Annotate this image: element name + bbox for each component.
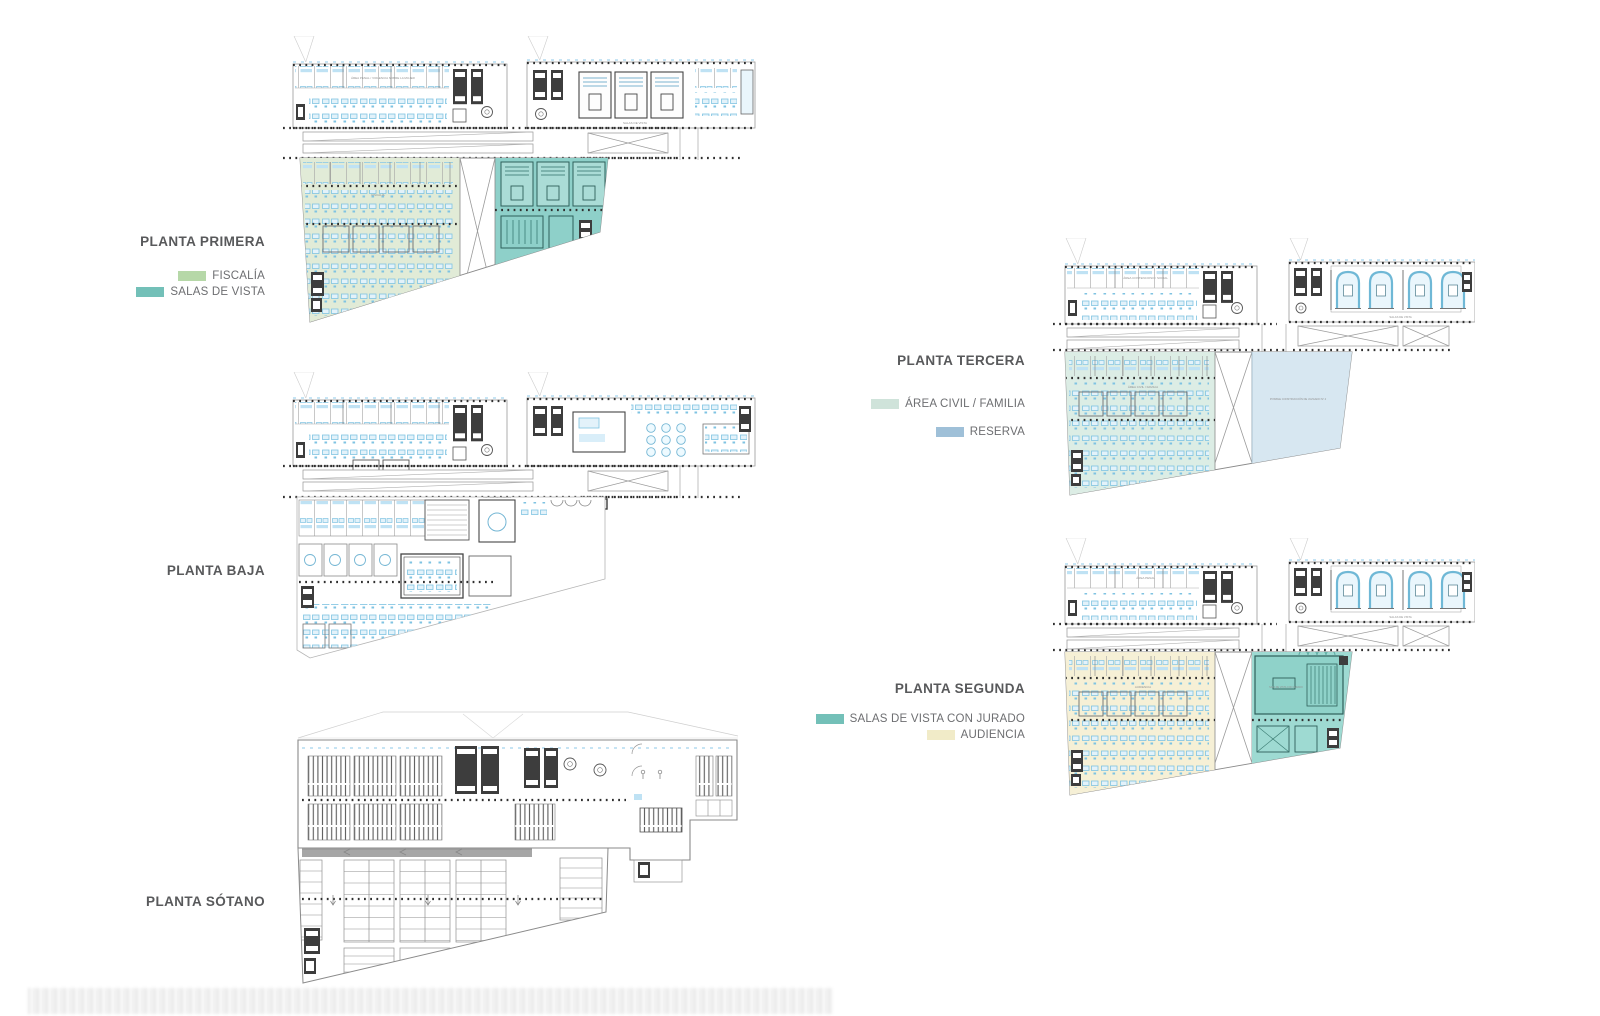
- plan-title-segunda: PLANTA SEGUNDA: [895, 681, 1025, 696]
- svg-text:SALA DE VISTA CON JURADO: SALA DE VISTA CON JURADO: [1269, 686, 1303, 689]
- plan-title-baja: PLANTA BAJA: [167, 563, 265, 578]
- legend-label: FISCALÍA: [212, 270, 265, 282]
- drawing-sheet: { "page": { "background": "#ffffff" }, "…: [0, 0, 1600, 1016]
- plan-title-sotano: PLANTA SÓTANO: [146, 894, 265, 909]
- svg-text:SALAS DE VISTA: SALAS DE VISTA: [1389, 315, 1411, 319]
- floor-plan-baja: CONTROL DE ACCESOS: [283, 372, 763, 664]
- legend-label: ÁREA CIVIL / FAMILIA: [905, 398, 1025, 410]
- floor-plan-sotano: [288, 700, 843, 1000]
- legend-swatch-salas-jurado: [816, 714, 844, 724]
- legend-item: ÁREA CIVIL / FAMILIA: [871, 398, 1025, 410]
- legend-item: RESERVA: [936, 426, 1025, 438]
- svg-text:SALAS DE VISTA: SALAS DE VISTA: [525, 255, 546, 259]
- svg-text:ÁREA CONTENCIOSO / SOCIAL: ÁREA CONTENCIOSO / SOCIAL: [1123, 276, 1168, 280]
- svg-text:ÁREA PENAL / VIOLENCIA SOBRE L: ÁREA PENAL / VIOLENCIA SOBRE LA MUJER: [351, 76, 416, 80]
- floor-plan-segunda: ÁREA PENALSALAS DE VISTAAUDIENCIASALA DE…: [1043, 538, 1475, 800]
- legend-label: AUDIENCIA: [961, 729, 1025, 741]
- baja-drawing: CONTROL DE ACCESOS: [283, 372, 763, 664]
- legend-segunda: SALAS DE VISTA CON JURADO AUDIENCIA: [816, 713, 1025, 741]
- legend-item: SALAS DE VISTA: [136, 286, 265, 298]
- floor-plan-tercera: ÁREA CONTENCIOSO / SOCIALSALAS DE VISTAÁ…: [1043, 238, 1475, 500]
- legend-label: RESERVA: [970, 426, 1025, 438]
- svg-text:AUDIENCIA: AUDIENCIA: [1135, 685, 1151, 689]
- legend-swatch-audiencia: [927, 730, 955, 740]
- legend-label: SALAS DE VISTA CON JURADO: [850, 713, 1025, 725]
- plan-title-primera: PLANTA PRIMERA: [140, 234, 265, 249]
- primera-drawing: ÁREA PENAL / VIOLENCIA SOBRE LA MUJERSAL…: [283, 36, 763, 328]
- plan-title-tercera: PLANTA TERCERA: [897, 353, 1025, 368]
- svg-text:SALAS DE VISTA: SALAS DE VISTA: [1389, 615, 1411, 619]
- legend-label: SALAS DE VISTA: [170, 286, 265, 298]
- legend-tercera: ÁREA CIVIL / FAMILIA RESERVA: [871, 398, 1025, 438]
- legend-item: AUDIENCIA: [927, 729, 1025, 741]
- svg-text:ÁREA PENAL: ÁREA PENAL: [1136, 576, 1155, 580]
- legend-swatch-reserva: [936, 427, 964, 437]
- legend-item: SALAS DE VISTA CON JURADO: [816, 713, 1025, 725]
- segunda-drawing: ÁREA PENALSALAS DE VISTAAUDIENCIASALA DE…: [1043, 538, 1475, 800]
- sotano-drawing: [288, 700, 843, 1000]
- cropped-drawing-edge: [28, 988, 833, 1014]
- legend-swatch-fiscalia: [178, 271, 206, 281]
- svg-text:ÁREA CIVIL / FAMILIA: ÁREA CIVIL / FAMILIA: [1128, 385, 1158, 389]
- tercera-drawing: ÁREA CONTENCIOSO / SOCIALSALAS DE VISTAÁ…: [1043, 238, 1475, 500]
- svg-text:FISCALÍA: FISCALÍA: [371, 193, 384, 197]
- legend-swatch-area-civil: [871, 399, 899, 409]
- legend-primera: FISCALÍA SALAS DE VISTA: [136, 270, 265, 298]
- legend-swatch-salas-de-vista: [136, 287, 164, 297]
- legend-item: FISCALÍA: [178, 270, 265, 282]
- floor-plan-primera: ÁREA PENAL / VIOLENCIA SOBRE LA MUJERSAL…: [283, 36, 763, 328]
- svg-text:SALAS DE VISTA: SALAS DE VISTA: [623, 121, 647, 125]
